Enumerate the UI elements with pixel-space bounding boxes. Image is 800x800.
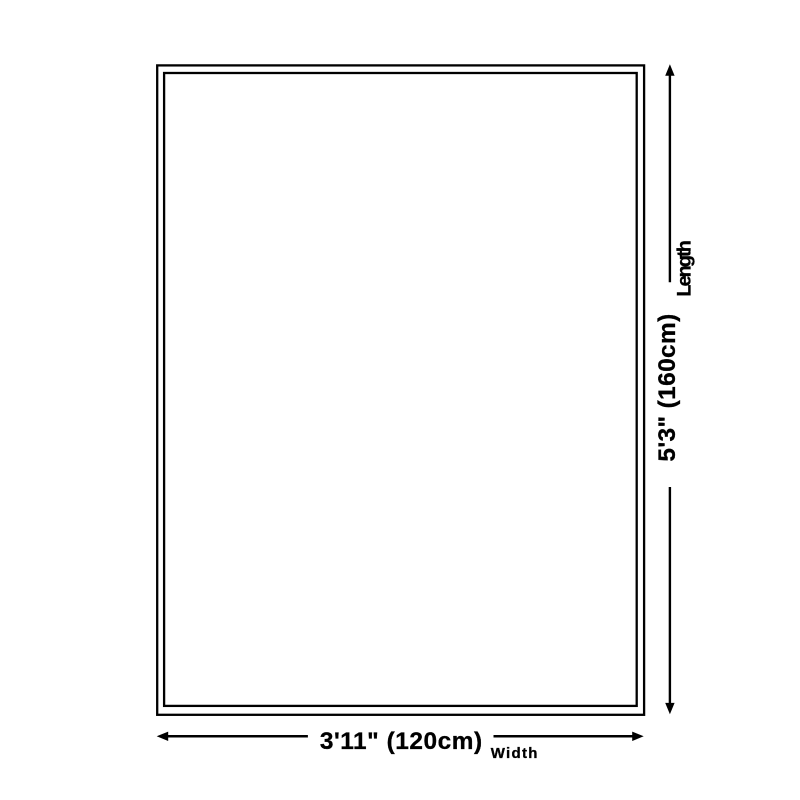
svg-text:3'11" (120cm): 3'11" (120cm) [320,728,483,755]
svg-text:5'3" (160cm): 5'3" (160cm) [654,313,681,461]
svg-text:Width: Width [491,745,539,762]
svg-text:Length: Length [673,241,695,296]
